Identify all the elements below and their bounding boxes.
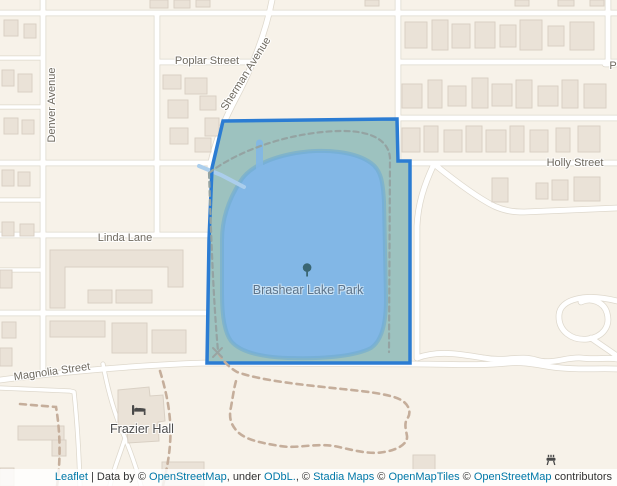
attribution-text: |: [88, 471, 97, 483]
odbl-link[interactable]: ODbL.: [264, 471, 296, 483]
openmaptiles-link[interactable]: OpenMapTiles: [388, 471, 459, 483]
map-canvas[interactable]: [0, 0, 617, 486]
stadia-maps-link[interactable]: Stadia Maps: [313, 471, 374, 483]
openstreetmap-link-2[interactable]: OpenStreetMap: [474, 471, 552, 483]
attribution-text: , under: [227, 471, 264, 483]
attribution-text: ©: [374, 471, 388, 483]
attribution-text: contributors: [551, 471, 612, 483]
attribution-text: ©: [460, 471, 474, 483]
attribution-text: , ©: [296, 471, 313, 483]
map-viewport[interactable]: Poplar Street Sherman Avenue Denver Aven…: [0, 0, 617, 486]
park-layer: [199, 119, 410, 363]
attribution-bar: Leaflet | Data by © OpenStreetMap, under…: [0, 469, 617, 486]
openstreetmap-link[interactable]: OpenStreetMap: [149, 471, 227, 483]
leaflet-link[interactable]: Leaflet: [55, 471, 88, 483]
lake-water: [222, 151, 386, 358]
attribution-text: Data by ©: [97, 471, 149, 483]
